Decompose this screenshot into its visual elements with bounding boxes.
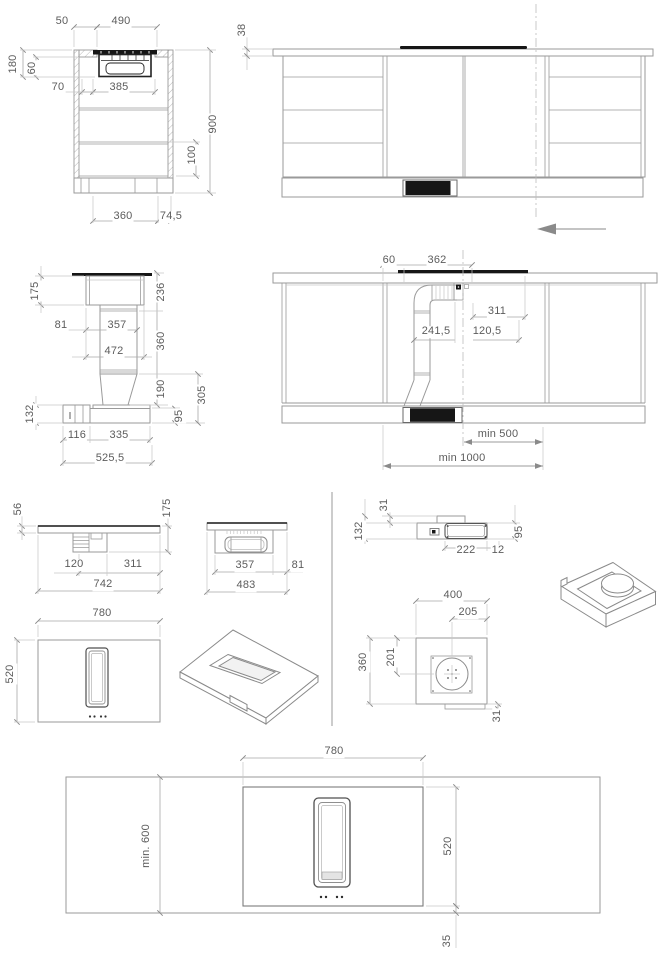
- dim-label-cabinet_front_elevation-0: 38: [237, 23, 249, 38]
- dim-label-downdraft_unit_section-6: 190: [156, 379, 168, 400]
- dimension-labels-layer: 50490180607038590010036074,5381752368135…: [0, 0, 666, 959]
- dim-label-cabinet_section_side-7: 100: [187, 145, 199, 166]
- dim-label-downdraft_unit_section-0: 175: [30, 281, 42, 302]
- dim-label-cabinet_duct_section-6: min 1000: [438, 453, 487, 465]
- dim-label-cabinet_duct_section-0: 60: [382, 255, 397, 267]
- dim-label-downdraft_unit_section-5: 472: [104, 346, 125, 358]
- dim-label-hob_side_long-2: 120: [64, 559, 85, 571]
- dim-label-fan_unit_side-0: 31: [379, 498, 391, 513]
- dim-label-worktop_plan-0: 780: [324, 746, 345, 758]
- dim-label-fan_unit_top-3: 201: [386, 647, 398, 668]
- dim-label-downdraft_unit_section-1: 236: [156, 282, 168, 303]
- dim-label-downdraft_unit_section-7: 305: [197, 385, 209, 406]
- drawing-sheet: 50490180607038590010036074,5381752368135…: [0, 0, 666, 959]
- dim-label-fan_unit_top-2: 360: [358, 652, 370, 673]
- dim-label-downdraft_unit_section-11: 335: [109, 430, 130, 442]
- dim-label-hob_side_short-2: 483: [236, 580, 257, 592]
- dim-label-cabinet_section_side-6: 900: [208, 114, 220, 135]
- dim-label-fan_unit_top-0: 400: [443, 590, 464, 602]
- dim-label-cabinet_duct_section-3: 241,5: [421, 326, 452, 338]
- dim-label-fan_unit_top-4: 31: [492, 709, 504, 724]
- dim-label-downdraft_unit_section-8: 132: [25, 404, 37, 425]
- dim-label-cabinet_duct_section-2: 311: [487, 306, 507, 318]
- dim-label-downdraft_unit_section-3: 357: [107, 320, 128, 332]
- dim-label-hob_top-1: 520: [5, 664, 17, 685]
- dim-label-fan_unit_side-1: 132: [354, 521, 366, 542]
- dim-label-hob_side_short-0: 357: [235, 560, 256, 572]
- dim-label-downdraft_unit_section-2: 81: [54, 320, 69, 332]
- dim-label-worktop_plan-3: 35: [442, 934, 454, 949]
- dim-label-downdraft_unit_section-12: 525,5: [95, 453, 126, 465]
- dim-label-hob_side_long-1: 175: [162, 498, 174, 519]
- dim-label-cabinet_section_side-9: 74,5: [159, 211, 183, 223]
- dim-label-downdraft_unit_section-10: 116: [67, 430, 87, 442]
- dim-label-fan_unit_top-1: 205: [458, 607, 479, 619]
- dim-label-cabinet_section_side-0: 50: [55, 16, 70, 28]
- dim-label-cabinet_section_side-2: 180: [8, 54, 20, 75]
- dim-label-downdraft_unit_section-9: 95: [174, 409, 186, 424]
- dim-label-fan_unit_side-3: 222: [456, 545, 477, 557]
- dim-label-cabinet_section_side-5: 385: [109, 82, 130, 94]
- dim-label-cabinet_duct_section-5: min 500: [477, 429, 520, 441]
- dim-label-fan_unit_side-4: 12: [491, 545, 506, 557]
- dim-label-cabinet_section_side-4: 70: [51, 82, 66, 94]
- dim-label-hob_side_long-4: 742: [93, 579, 114, 591]
- dim-label-cabinet_duct_section-1: 362: [427, 255, 448, 267]
- dim-label-worktop_plan-1: min. 600: [141, 823, 153, 869]
- dim-label-cabinet_section_side-1: 490: [111, 16, 132, 28]
- dim-label-hob_side_short-1: 81: [291, 560, 306, 572]
- dim-label-fan_unit_side-2: 95: [514, 525, 526, 540]
- dim-label-cabinet_duct_section-4: 120,5: [472, 326, 503, 338]
- dim-label-worktop_plan-2: 520: [443, 836, 455, 857]
- dim-label-hob_top-0: 780: [92, 608, 113, 620]
- dim-label-hob_side_long-3: 311: [123, 559, 143, 571]
- dim-label-hob_side_long-0: 56: [13, 502, 25, 517]
- dim-label-cabinet_section_side-8: 360: [113, 211, 134, 223]
- dim-label-downdraft_unit_section-4: 360: [156, 331, 168, 352]
- dim-label-cabinet_section_side-3: 60: [27, 61, 39, 76]
